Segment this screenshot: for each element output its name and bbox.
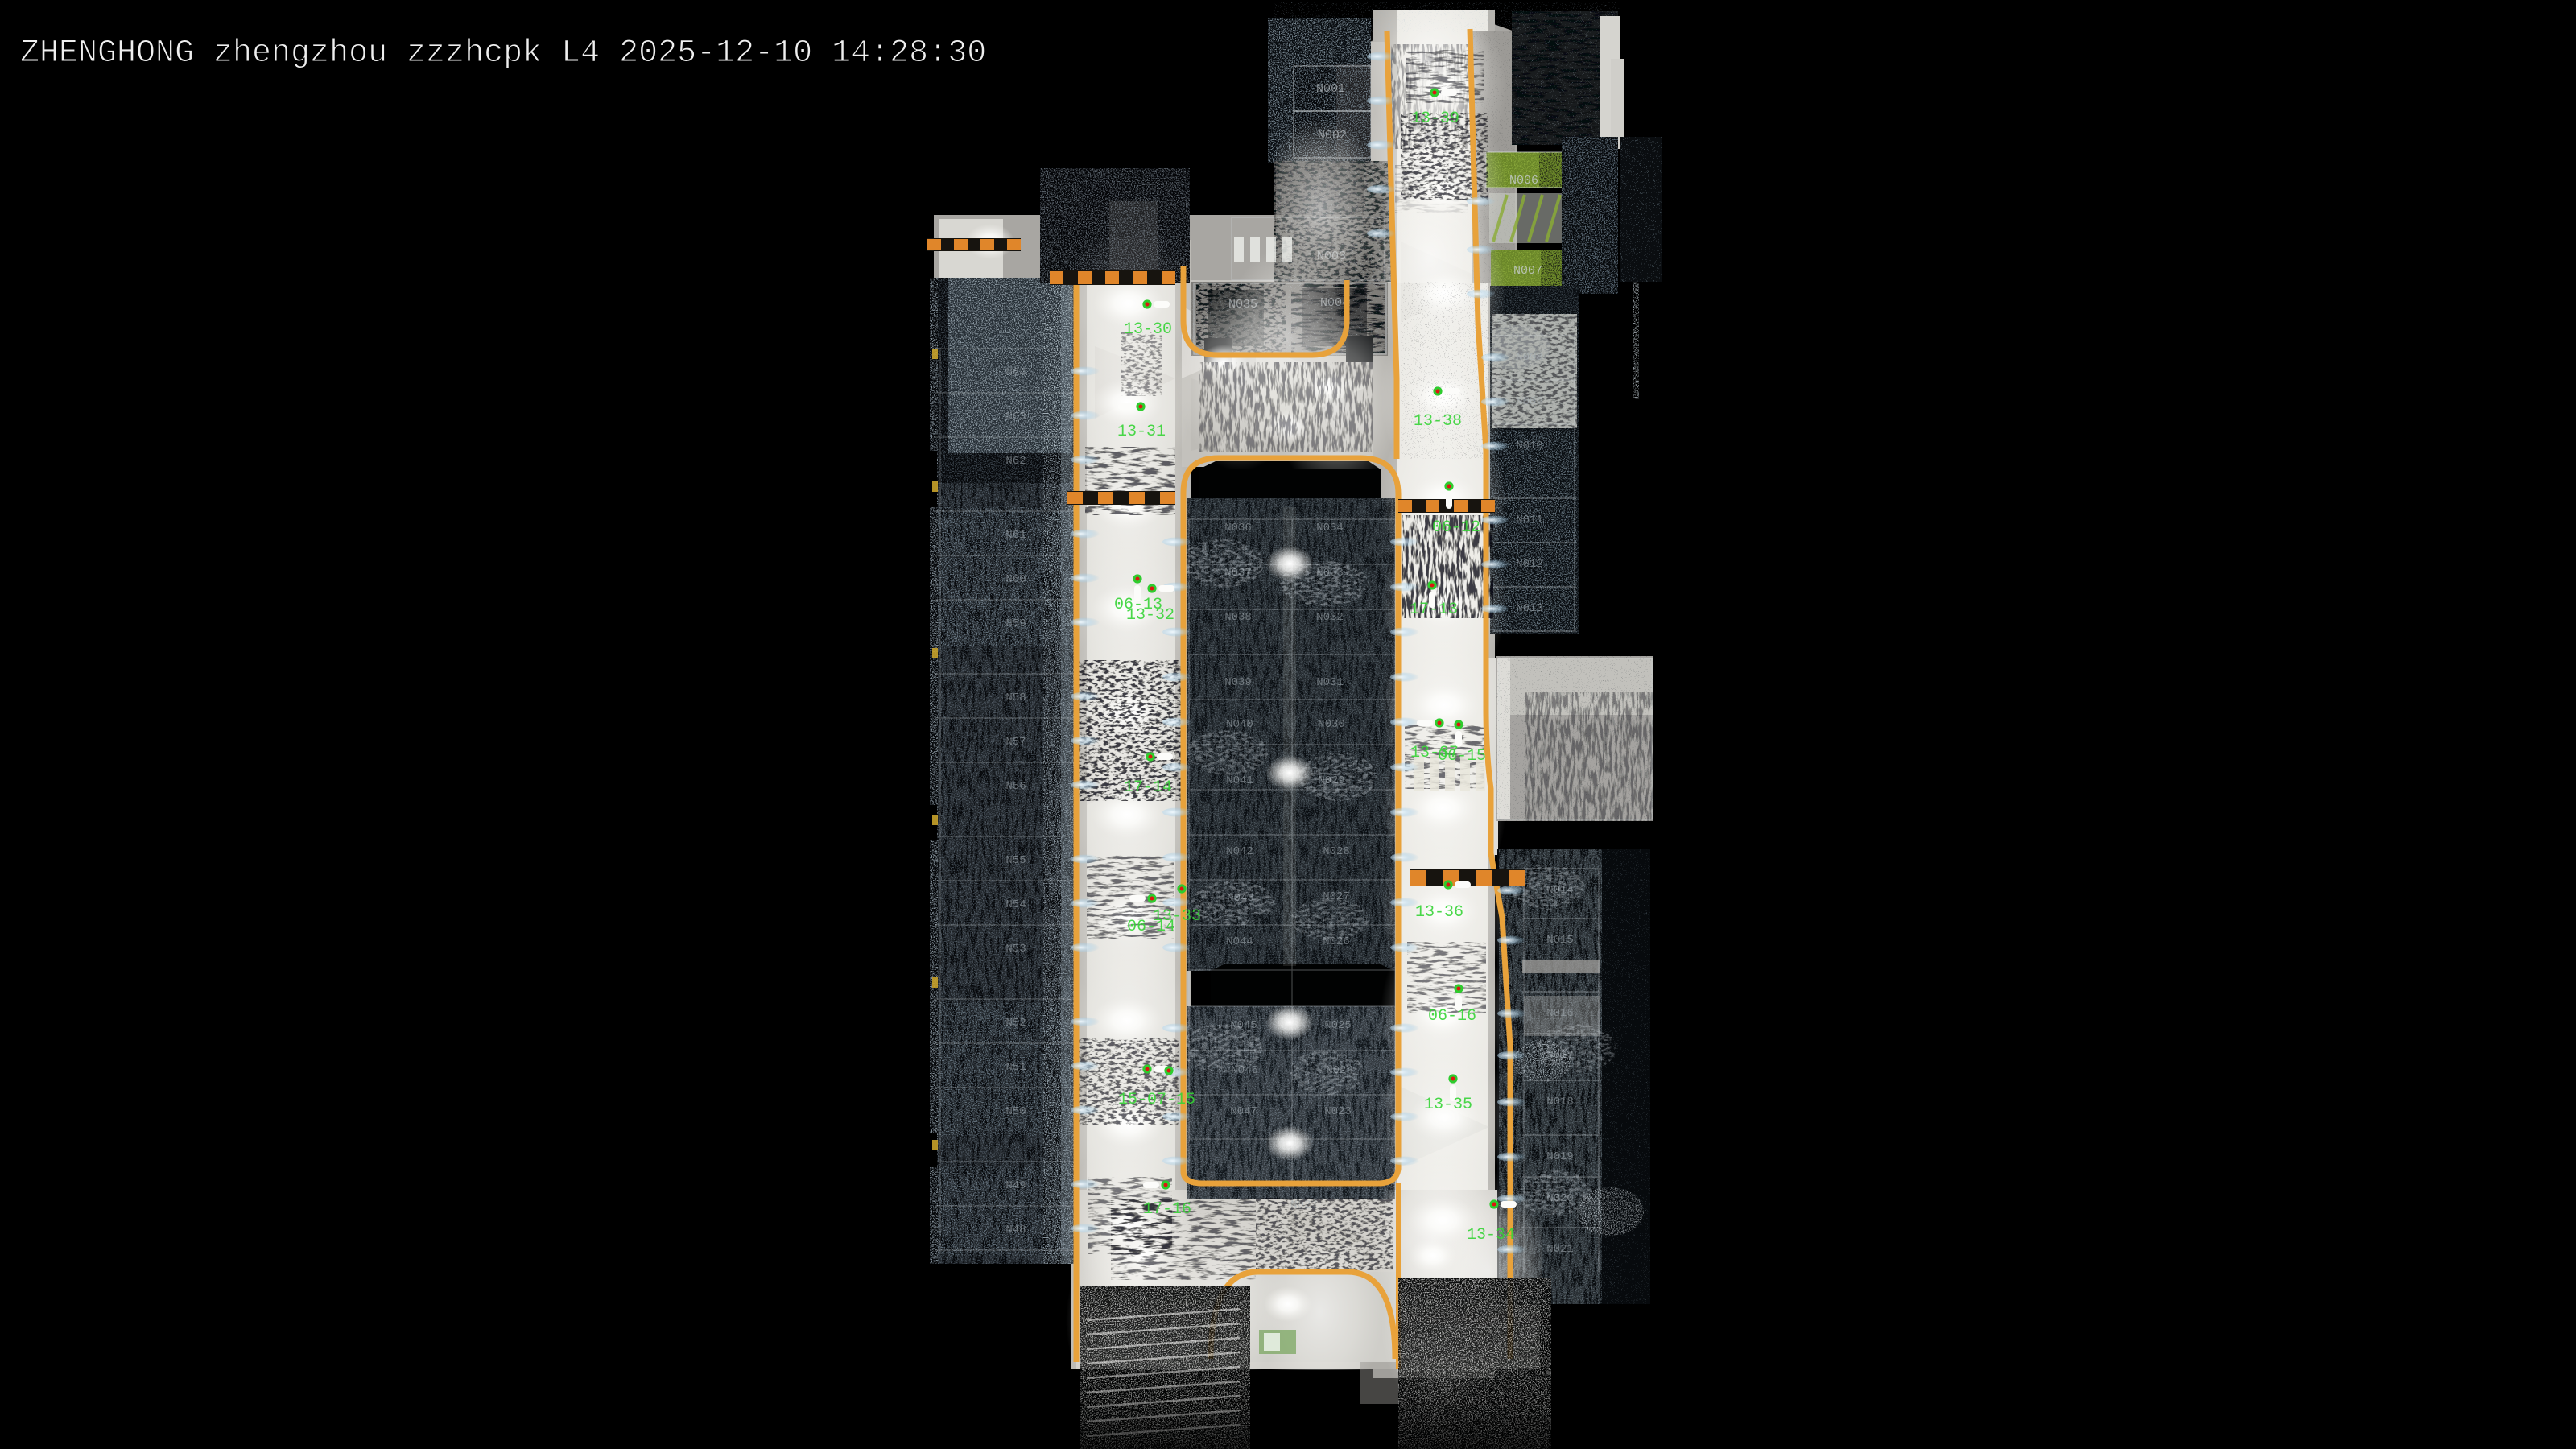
svg-text:N025: N025 [1324, 1019, 1352, 1032]
svg-text:N60: N60 [1005, 573, 1026, 586]
svg-text:N039: N039 [1224, 676, 1252, 689]
svg-text:17-16: 17-16 [1143, 1200, 1191, 1219]
svg-text:06-12: 06-12 [1432, 518, 1480, 537]
svg-text:17-14: 17-14 [1124, 778, 1172, 797]
svg-text:N019: N019 [1546, 1150, 1574, 1163]
svg-text:N54: N54 [1005, 898, 1026, 911]
svg-text:N61: N61 [1005, 529, 1026, 542]
svg-text:ZHENGHONG_zhengzhou_zzzhcpk L4: ZHENGHONG_zhengzhou_zzzhcpk L4 2025-12-1… [20, 35, 986, 72]
svg-text:N50: N50 [1005, 1105, 1026, 1118]
svg-text:N031: N031 [1316, 676, 1344, 689]
svg-text:N018: N018 [1546, 1096, 1574, 1108]
svg-text:17-13: 17-13 [1410, 601, 1458, 619]
svg-text:N030: N030 [1318, 718, 1345, 731]
svg-text:N58: N58 [1005, 691, 1026, 704]
svg-text:N015: N015 [1546, 934, 1574, 947]
svg-text:13-39: 13-39 [1411, 109, 1459, 128]
svg-text:N53: N53 [1005, 943, 1026, 956]
svg-text:N55: N55 [1005, 854, 1026, 867]
svg-text:N57: N57 [1005, 736, 1026, 749]
svg-text:N036: N036 [1224, 522, 1252, 535]
svg-text:N032: N032 [1316, 611, 1344, 624]
svg-text:N047: N047 [1230, 1105, 1257, 1118]
svg-text:N007: N007 [1513, 264, 1542, 278]
svg-text:N041: N041 [1226, 774, 1253, 787]
svg-text:N034: N034 [1316, 522, 1344, 535]
svg-text:N63: N63 [1005, 411, 1026, 423]
svg-text:N044: N044 [1226, 935, 1253, 948]
svg-text:13-36: 13-36 [1415, 903, 1463, 922]
svg-text:13-30: 13-30 [1124, 320, 1172, 339]
svg-text:N016: N016 [1546, 1007, 1574, 1020]
svg-text:N51: N51 [1005, 1061, 1026, 1074]
svg-text:N52: N52 [1005, 1017, 1026, 1030]
svg-text:N49: N49 [1005, 1179, 1026, 1192]
svg-text:06-14: 06-14 [1127, 918, 1175, 936]
svg-text:N59: N59 [1005, 617, 1026, 630]
svg-text:N006: N006 [1509, 174, 1538, 188]
svg-text:13-38: 13-38 [1414, 412, 1462, 431]
svg-text:N021: N021 [1546, 1243, 1574, 1256]
svg-text:13-34: 13-34 [1467, 1226, 1515, 1245]
svg-text:13-35: 13-35 [1424, 1096, 1472, 1114]
svg-text:N62: N62 [1005, 455, 1026, 468]
svg-text:06-15: 06-15 [1438, 747, 1486, 766]
svg-text:N64: N64 [1005, 366, 1026, 379]
svg-text:15-07-15: 15-07-15 [1118, 1091, 1195, 1109]
svg-text:N009: N009 [1516, 395, 1543, 408]
svg-text:13-32: 13-32 [1126, 606, 1174, 625]
svg-text:06-16: 06-16 [1428, 1007, 1476, 1026]
svg-text:N038: N038 [1224, 611, 1252, 624]
svg-text:N001: N001 [1316, 82, 1345, 96]
svg-text:N040: N040 [1226, 718, 1253, 731]
svg-text:N028: N028 [1323, 845, 1350, 858]
svg-text:13-31: 13-31 [1117, 423, 1166, 441]
svg-text:N023: N023 [1324, 1105, 1352, 1118]
svg-text:N48: N48 [1005, 1224, 1026, 1236]
svg-text:N56: N56 [1005, 780, 1026, 793]
svg-text:N042: N042 [1226, 845, 1253, 858]
